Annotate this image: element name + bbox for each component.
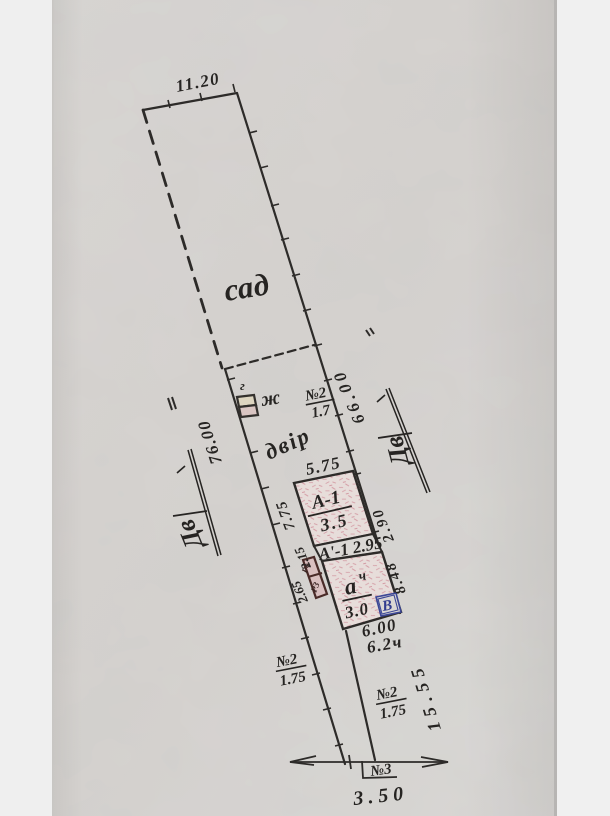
svg-text:сад: сад <box>222 266 272 308</box>
svg-text:№3: №3 <box>368 761 393 780</box>
svg-text:ж: ж <box>259 387 282 412</box>
svg-text:г: г <box>240 378 245 393</box>
